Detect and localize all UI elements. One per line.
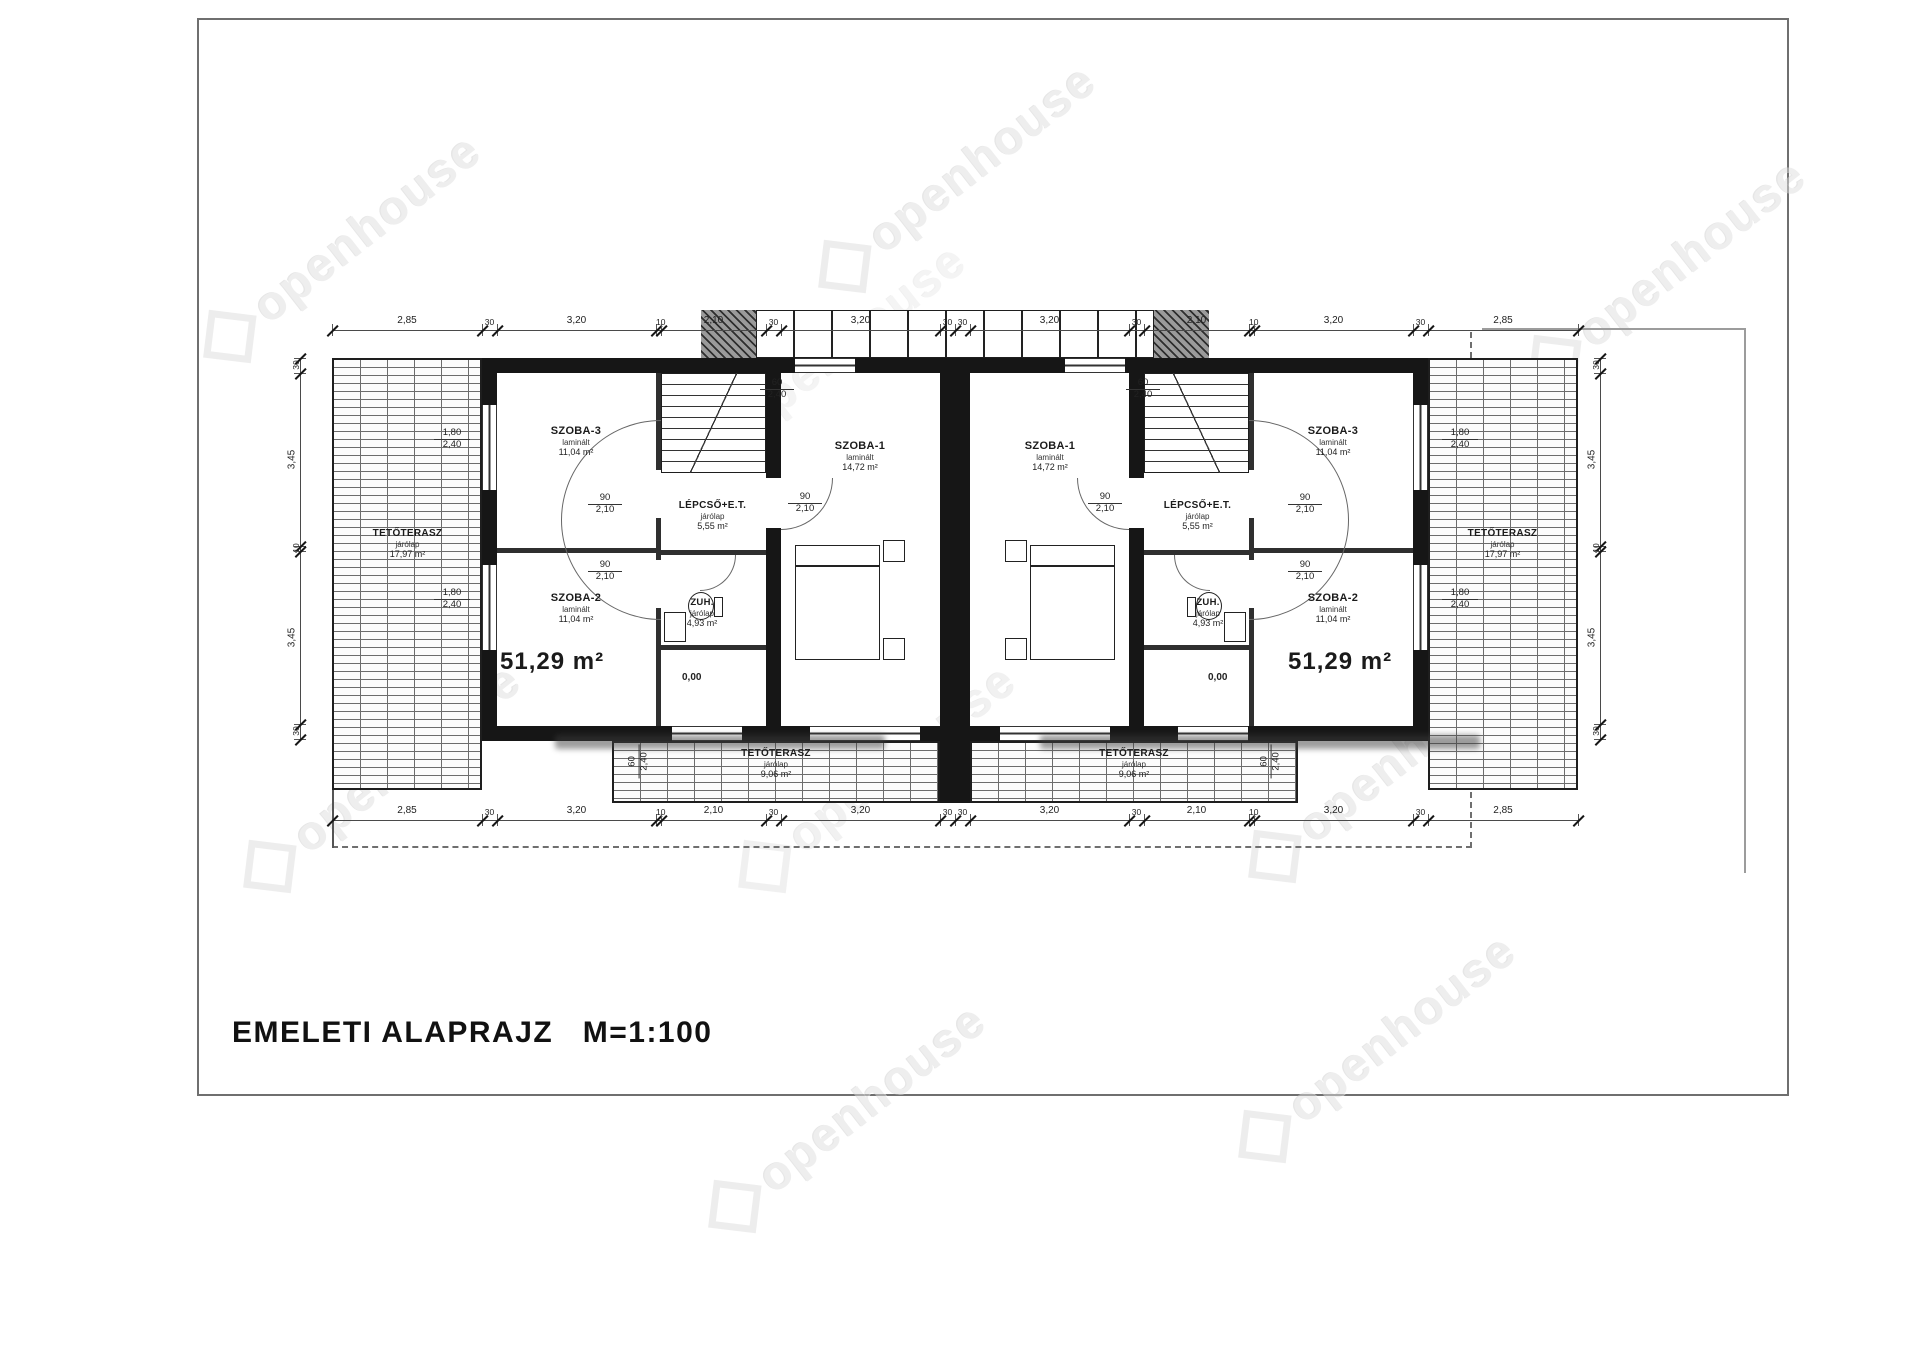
blurred-url-watermark [555,735,885,749]
door-size-label: 902,10 [788,492,822,515]
partition-zuh-bottom-right [1144,645,1249,650]
stair-fan-line [661,373,766,473]
room-label-stairs-right: LÉPCSŐ+E.T. járólap 5,55 m² [1140,500,1255,531]
room-label-szoba1-right: SZOBA-1 laminált 14,72 m² [980,440,1120,472]
room-label-stairs-left: LÉPCSŐ+E.T. járólap 5,55 m² [655,500,770,531]
level-marker-left: 0,00 [682,672,701,683]
nightstand [883,540,905,562]
nightstand [883,638,905,660]
partition-zuh-bottom-left [661,645,766,650]
terrace-side-left [332,358,482,790]
title-scale: M=1:100 [583,1016,713,1049]
door-size-label: 902,10 [588,560,622,583]
wall-party-extension [940,741,970,803]
window-size-label: 1,802,40 [434,428,470,451]
wall-party [940,358,970,741]
room-label-szoba2-left: SZOBA-2 laminált 11,04 m² [516,592,636,624]
bed-pillow-line [1030,565,1115,567]
nightstand [1005,638,1027,660]
room-label-szoba1-left: SZOBA-1 laminált 14,72 m² [790,440,930,472]
openhouse-logo-icon [708,1179,761,1232]
window-size-label: 602,40 [1126,378,1160,401]
door-size-label: 902,10 [588,493,622,516]
window-size-label: 602,40 [1260,744,1283,778]
roof-overhang-dashed-line [332,846,1472,848]
hatched-parapet [1154,310,1209,358]
room-label-shower-right: ZUH. járólap 4,93 m² [1178,598,1238,628]
openhouse-logo-icon [1238,1109,1291,1162]
window [795,358,855,373]
door-size-label: 902,10 [1088,492,1122,515]
window [1065,358,1125,373]
room-label-szoba3-left: SZOBA-3 laminált 11,04 m² [516,425,636,457]
window-size-label: 1,802,40 [434,588,470,611]
window [1413,405,1428,490]
nightstand [1005,540,1027,562]
room-label-szoba3-right: SZOBA-3 laminált 11,04 m² [1273,425,1393,457]
bed-pillow-line [795,565,880,567]
window-size-label: 1,802,40 [1442,428,1478,451]
bed [1030,545,1115,660]
neighbour-outline [1482,328,1744,330]
wall-hall-szoba1-right [1129,373,1144,726]
extension-line [332,788,334,848]
neighbour-outline [1744,328,1746,873]
title-text: EMELETI ALAPRAJZ [232,1016,553,1049]
door-size-label: 902,10 [1288,493,1322,516]
room-label-szoba2-right: SZOBA-2 laminált 11,04 m² [1273,592,1393,624]
terrace-side-right [1428,358,1578,790]
window [482,405,497,490]
window-size-label: 1,802,40 [1442,588,1478,611]
window [482,565,497,650]
window [1413,565,1428,650]
window-size-label: 602,40 [628,744,651,778]
terrace-label-side-right: TETŐTERASZ járólap 17,97 m² [1440,528,1565,559]
balcony-glazing [756,310,1154,358]
door-size-label: 902,10 [1288,560,1322,583]
terrace-label-side-left: TETŐTERASZ járólap 17,97 m² [345,528,470,559]
wall-hall-szoba1-left [766,373,781,726]
bed [795,545,880,660]
blurred-url-watermark [1040,735,1480,749]
window-size-label: 602,40 [760,378,794,401]
unit-total-area-left: 51,29 m² [500,648,604,676]
terrace-label-bottom-left: TETŐTERASZ járólap 9,06 m² [716,748,836,779]
terrace-label-bottom-right: TETŐTERASZ járólap 9,06 m² [1074,748,1194,779]
level-marker-right: 0,00 [1208,672,1227,683]
drawing-title: EMELETI ALAPRAJZ M=1:100 [232,1016,713,1050]
unit-total-area-right: 51,29 m² [1288,648,1392,676]
room-label-shower-left: ZUH. járólap 4,93 m² [672,598,732,628]
hatched-parapet [701,310,756,358]
